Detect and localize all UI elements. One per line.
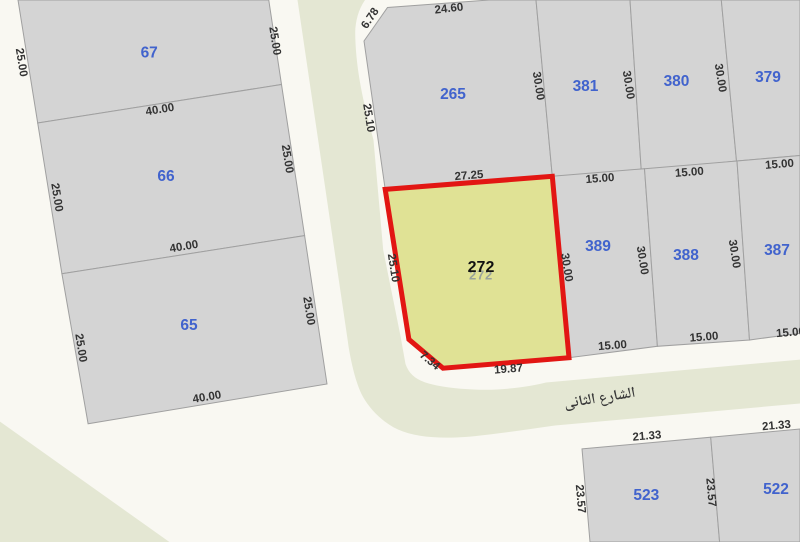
svg-text:389: 389: [585, 238, 611, 255]
svg-text:381: 381: [573, 78, 599, 95]
svg-text:65: 65: [180, 317, 198, 334]
svg-text:21.33: 21.33: [632, 429, 662, 443]
svg-text:388: 388: [673, 247, 699, 264]
svg-text:15.00: 15.00: [776, 326, 800, 340]
svg-text:523: 523: [633, 487, 659, 504]
svg-text:21.33: 21.33: [762, 419, 792, 433]
svg-text:15.00: 15.00: [675, 166, 705, 180]
svg-text:15.00: 15.00: [598, 339, 628, 353]
svg-text:272: 272: [468, 259, 495, 276]
svg-text:379: 379: [755, 69, 781, 86]
svg-text:15.00: 15.00: [585, 172, 615, 186]
svg-text:23.57: 23.57: [703, 478, 717, 508]
svg-text:265: 265: [440, 86, 466, 103]
svg-text:23.57: 23.57: [573, 484, 587, 514]
svg-text:27.25: 27.25: [454, 169, 484, 183]
svg-text:380: 380: [664, 73, 690, 90]
svg-text:66: 66: [157, 168, 175, 185]
svg-text:19.87: 19.87: [494, 362, 524, 376]
svg-text:387: 387: [764, 242, 790, 259]
svg-text:15.00: 15.00: [765, 158, 795, 172]
svg-text:522: 522: [763, 481, 789, 498]
svg-text:15.00: 15.00: [689, 330, 719, 344]
svg-text:67: 67: [141, 45, 158, 62]
